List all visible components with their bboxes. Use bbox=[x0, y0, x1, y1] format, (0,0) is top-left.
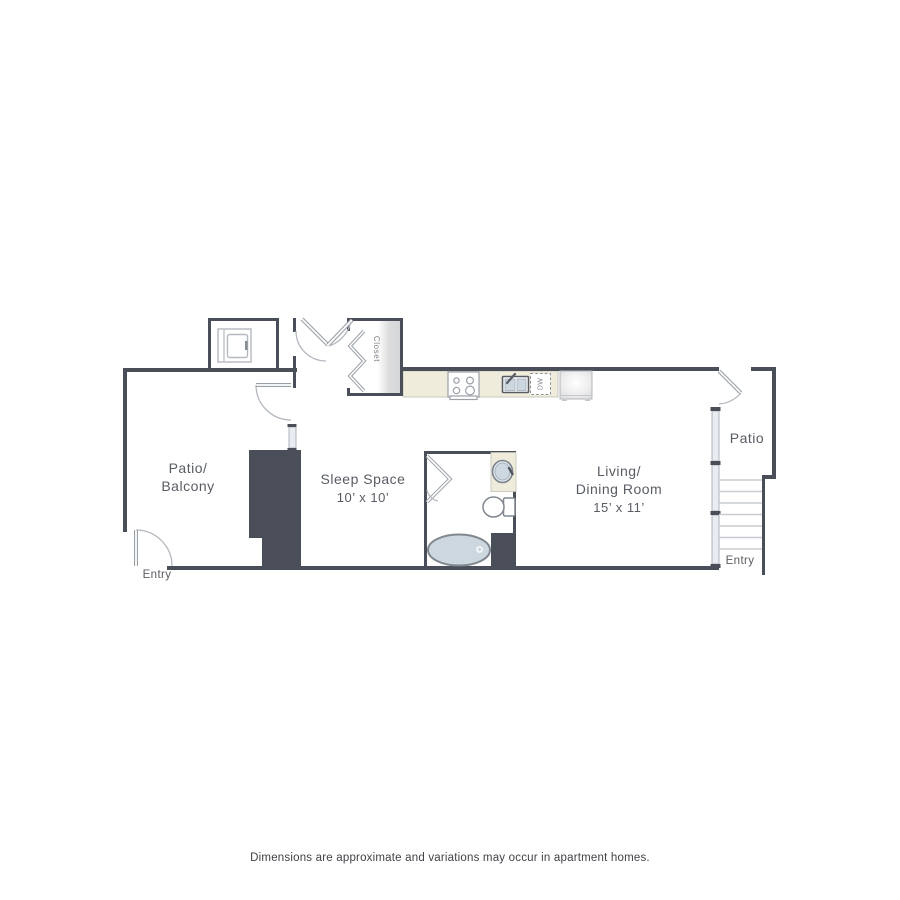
wall-closet-right bbox=[400, 318, 403, 396]
window-cap bbox=[711, 407, 721, 411]
living-dining-dimensions: 15’ x 11’ bbox=[593, 500, 644, 515]
window-cap bbox=[711, 461, 721, 465]
patio-balcony-label-line2: Balcony bbox=[161, 478, 214, 494]
wall-block-bath bbox=[491, 533, 516, 568]
wall-main-top bbox=[403, 367, 719, 371]
vanity-sink-icon bbox=[491, 453, 516, 492]
door-swing-icon bbox=[136, 530, 172, 566]
closet-label: Closet bbox=[372, 336, 381, 362]
wall-closet-top bbox=[347, 318, 403, 321]
stove-icon bbox=[448, 372, 479, 400]
wall-sleep-door-jamb bbox=[293, 356, 296, 388]
wall-laundry-top bbox=[208, 318, 278, 321]
washer-dryer-icon bbox=[218, 329, 251, 362]
window-icon bbox=[289, 427, 296, 448]
door-swing-icon bbox=[719, 371, 741, 404]
window-cap bbox=[288, 448, 297, 451]
living-dining-label-line2: Dining Room bbox=[576, 481, 662, 497]
wall-right bbox=[772, 367, 776, 479]
floor-plan: DW Patio/ Balcony Sleep Space 10’ bbox=[0, 0, 900, 900]
door-swing-icon bbox=[256, 385, 291, 420]
window-icon bbox=[712, 465, 719, 511]
dishwasher-icon: DW bbox=[531, 374, 551, 395]
living-dining-label-line1: Living/ bbox=[597, 463, 641, 479]
bifold-door-icon bbox=[427, 456, 450, 502]
wall-bath-left bbox=[424, 451, 427, 568]
wall-left bbox=[123, 368, 127, 532]
kitchen-sink-icon bbox=[503, 374, 529, 393]
disclaimer-text: Dimensions are approximate and variation… bbox=[250, 852, 650, 864]
dishwasher-label: DW bbox=[537, 378, 544, 390]
entry-left-label: Entry bbox=[143, 569, 172, 581]
wall-bottom bbox=[167, 566, 719, 570]
patio-label: Patio bbox=[730, 430, 764, 446]
wall-laundry-right bbox=[276, 318, 279, 370]
patio-balcony-label-line1: Patio/ bbox=[169, 460, 208, 476]
wall-vestibule-jamb bbox=[293, 318, 296, 332]
bathtub-icon bbox=[428, 535, 490, 566]
entry-right-label: Entry bbox=[726, 555, 755, 567]
window-icon bbox=[712, 515, 719, 564]
toilet-icon bbox=[483, 497, 515, 517]
window-cap bbox=[711, 564, 721, 568]
door-swing-icon bbox=[296, 319, 352, 361]
sleep-space-dimensions: 10’ x 10’ bbox=[337, 490, 389, 505]
wall-block-sleep bbox=[249, 450, 301, 568]
stairs-icon bbox=[719, 480, 762, 549]
wall-laundry-left bbox=[208, 318, 211, 371]
wall-closet-bottom bbox=[347, 393, 403, 396]
window-cap bbox=[288, 424, 297, 427]
floor-plan-page: DW Patio/ Balcony Sleep Space 10’ bbox=[0, 0, 900, 900]
window-icon bbox=[712, 411, 719, 461]
refrigerator-icon bbox=[560, 371, 592, 401]
wall-stair-right bbox=[762, 475, 765, 575]
sleep-space-label: Sleep Space bbox=[321, 471, 406, 487]
